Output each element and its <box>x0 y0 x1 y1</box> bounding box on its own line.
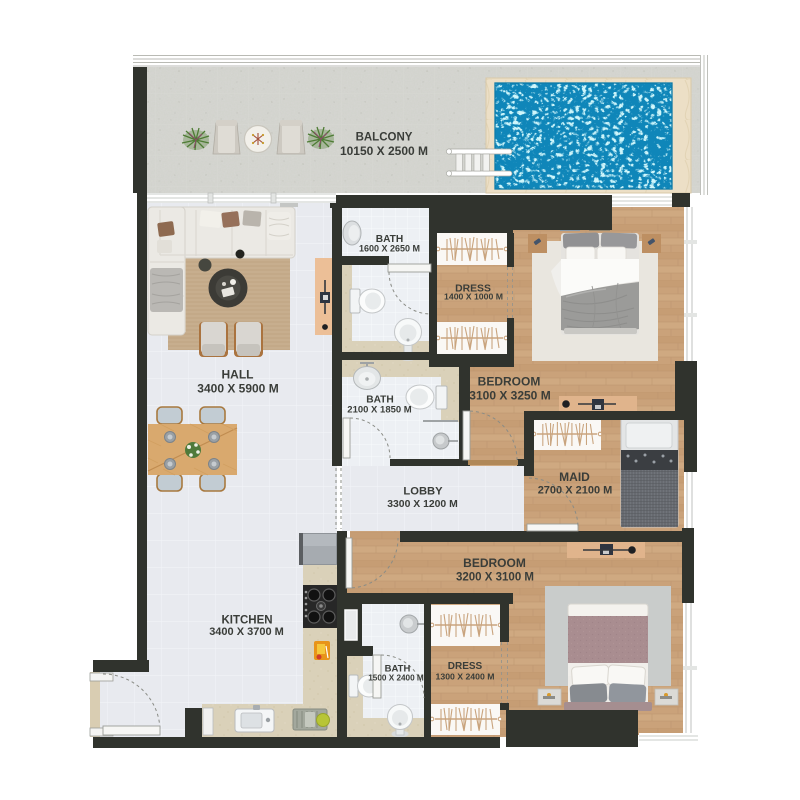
svg-text:1400 X 1000 M: 1400 X 1000 M <box>444 292 503 302</box>
svg-text:1300 X 2400 M: 1300 X 2400 M <box>436 672 495 682</box>
svg-text:DRESS: DRESS <box>448 661 483 672</box>
svg-text:3200 X 3100 M: 3200 X 3100 M <box>456 572 534 584</box>
svg-text:3300 X 1200 M: 3300 X 1200 M <box>387 499 457 510</box>
svg-text:3400 X 5900 M: 3400 X 5900 M <box>197 382 278 396</box>
svg-text:KITCHEN: KITCHEN <box>221 615 272 627</box>
svg-text:2700 X 2100 M: 2700 X 2100 M <box>538 485 613 497</box>
svg-text:1500 X 2400 M: 1500 X 2400 M <box>368 674 424 683</box>
svg-text:BEDROOM: BEDROOM <box>463 556 526 570</box>
svg-text:BALCONY: BALCONY <box>356 132 413 144</box>
svg-text:MAID: MAID <box>559 470 590 484</box>
svg-text:3100 X 3250 M: 3100 X 3250 M <box>469 389 550 403</box>
svg-text:LOBBY: LOBBY <box>403 486 443 498</box>
svg-text:HALL: HALL <box>222 368 254 382</box>
svg-text:10150 X 2500 M: 10150 X 2500 M <box>340 144 428 158</box>
svg-text:2100 X 1850 M: 2100 X 1850 M <box>347 405 412 416</box>
svg-text:3400 X 3700 M: 3400 X 3700 M <box>209 626 284 638</box>
svg-text:BEDROOM: BEDROOM <box>478 375 541 389</box>
svg-text:1600 X 2650 M: 1600 X 2650 M <box>359 244 420 254</box>
